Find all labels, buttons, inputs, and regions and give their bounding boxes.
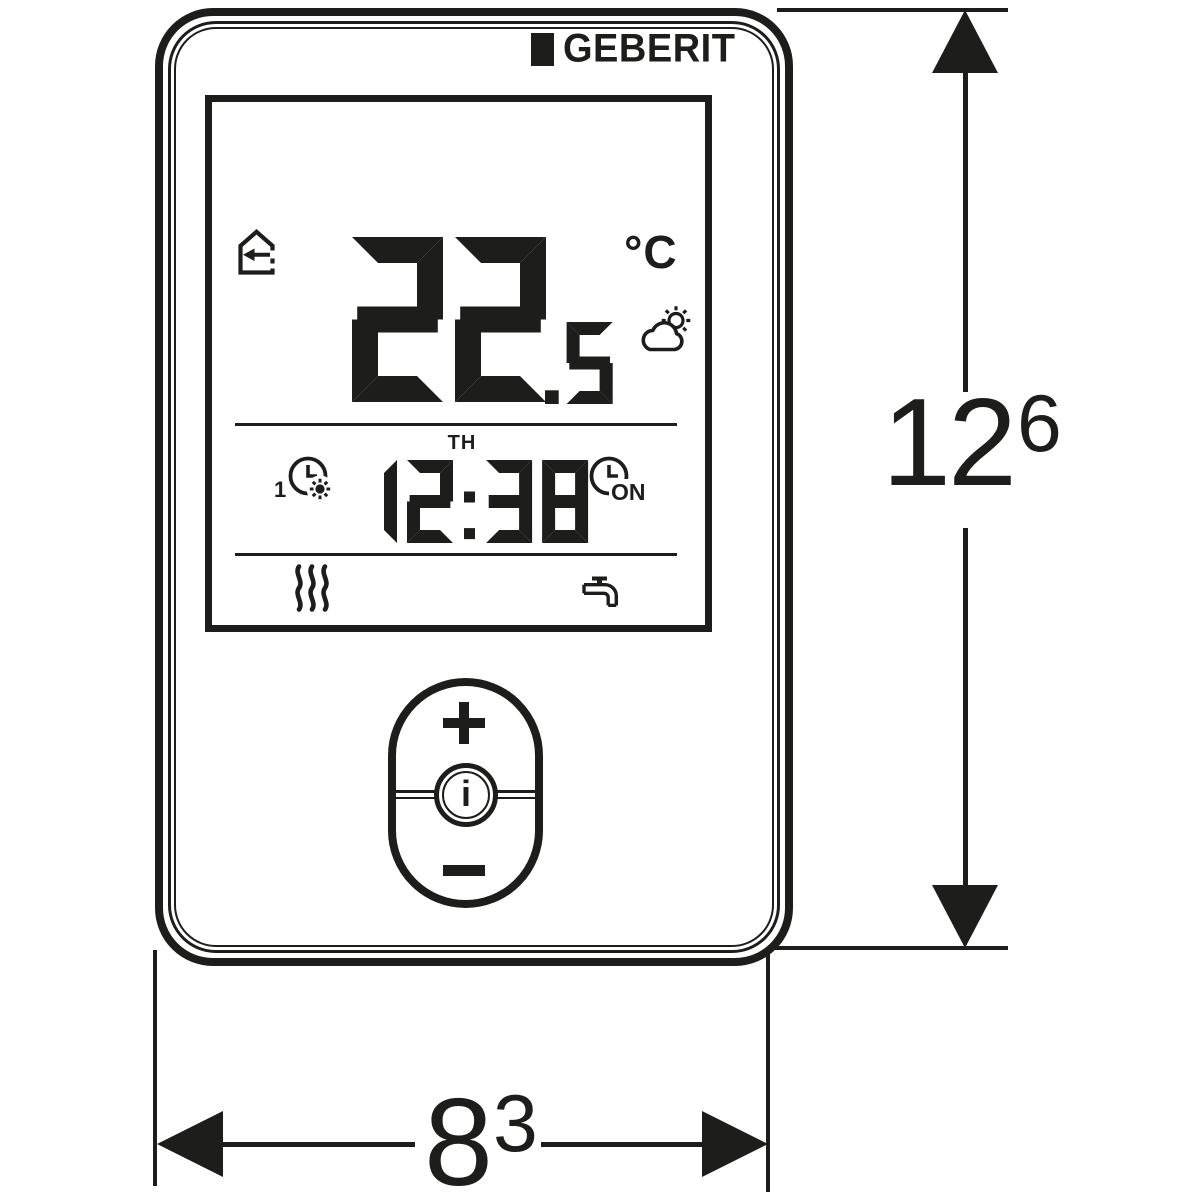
- thermostat-device: GEBERIT °C: [155, 8, 793, 966]
- time-display: [351, 460, 589, 543]
- width-dimension-line-right: [541, 1142, 704, 1147]
- arrow-down-icon: [932, 885, 998, 948]
- water-tap-icon: [581, 575, 625, 607]
- temperature-decimal: [545, 322, 613, 404]
- minus-icon: [443, 865, 485, 876]
- height-dimension-line-upper: [963, 70, 968, 392]
- control-button-panel: i: [388, 678, 543, 908]
- height-dimension-label: 126: [882, 381, 1062, 505]
- sun-behind-cloud-icon: [636, 304, 696, 356]
- program-on-number: 1: [574, 479, 586, 501]
- height-value: 12: [882, 374, 1014, 512]
- day-of-week: TH: [402, 433, 522, 453]
- clock-sun-icon: [288, 454, 336, 508]
- program-on-indicator: 1 ON: [574, 453, 654, 509]
- arrow-up-icon: [932, 10, 998, 73]
- brand-logo-text: GEBERIT: [563, 29, 735, 69]
- clock-on-icon: ON: [588, 454, 648, 508]
- info-glyph: i: [461, 776, 471, 812]
- home-presence-icon: [238, 229, 275, 275]
- arrow-left-icon: [157, 1111, 223, 1177]
- brand-logo: GEBERIT: [531, 30, 735, 68]
- program-comfort-indicator: 1: [274, 453, 354, 509]
- height-superscript: 6: [1017, 379, 1062, 469]
- program-comfort-number: 1: [274, 479, 286, 501]
- brand-logo-square-icon: [531, 33, 554, 66]
- lcd-display: °C TH 1: [205, 95, 712, 632]
- display-separator-bottom: [235, 553, 677, 556]
- width-value: 8: [424, 1074, 490, 1200]
- technical-drawing-canvas: GEBERIT °C: [0, 0, 1200, 1200]
- width-dimension-label: 83: [424, 1081, 538, 1200]
- info-button: i: [434, 763, 498, 827]
- temperature-integer: [352, 237, 546, 402]
- display-separator-top: [235, 423, 677, 426]
- width-superscript: 3: [493, 1079, 538, 1169]
- program-on-label: ON: [611, 479, 646, 505]
- width-dimension-line-left: [221, 1142, 415, 1147]
- heating-icon: [292, 564, 332, 614]
- temperature-unit: °C: [624, 229, 678, 275]
- height-dimension-line-lower: [963, 528, 968, 886]
- info-button-ring: i: [442, 771, 490, 819]
- arrow-right-icon: [702, 1111, 768, 1177]
